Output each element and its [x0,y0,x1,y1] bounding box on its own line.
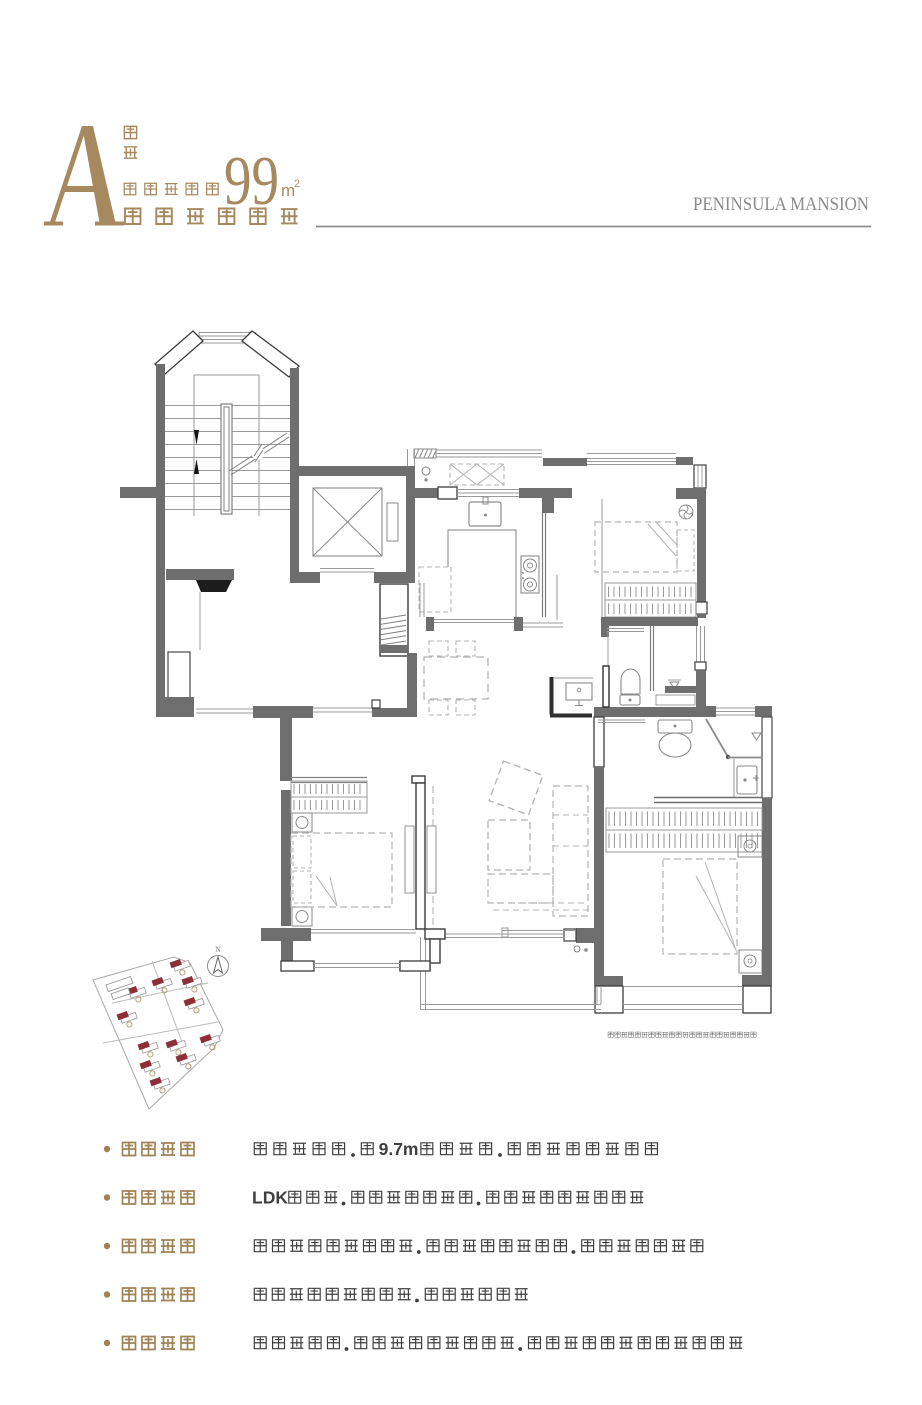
svg-text:N: N [215,945,221,954]
svg-text:2: 2 [294,178,300,190]
svg-text:LDK: LDK [252,1188,288,1208]
svg-text:PENINSULA MANSION: PENINSULA MANSION [693,194,869,215]
svg-text:9.7m: 9.7m [379,1139,419,1159]
